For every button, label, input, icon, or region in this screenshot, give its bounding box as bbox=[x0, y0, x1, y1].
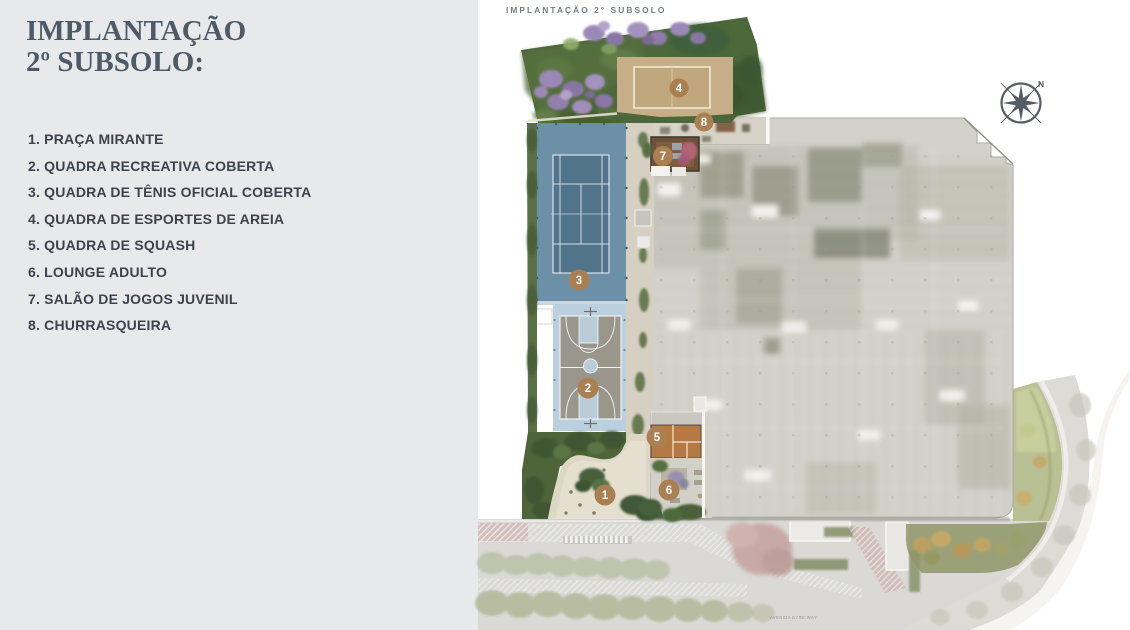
svg-text:2: 2 bbox=[585, 383, 591, 395]
svg-text:AVENIDA EYRE WAY: AVENIDA EYRE WAY bbox=[770, 615, 817, 620]
svg-text:7: 7 bbox=[660, 151, 666, 163]
svg-text:8: 8 bbox=[701, 117, 708, 129]
svg-text:IMPLANTAÇÃO 2° SUBSOLO: IMPLANTAÇÃO 2° SUBSOLO bbox=[506, 5, 666, 15]
svg-text:N: N bbox=[1038, 79, 1044, 89]
svg-text:4: 4 bbox=[676, 83, 683, 95]
svg-text:5: 5 bbox=[654, 432, 661, 444]
svg-text:3: 3 bbox=[576, 275, 582, 287]
svg-text:6: 6 bbox=[666, 485, 672, 497]
svg-text:1: 1 bbox=[602, 490, 609, 502]
